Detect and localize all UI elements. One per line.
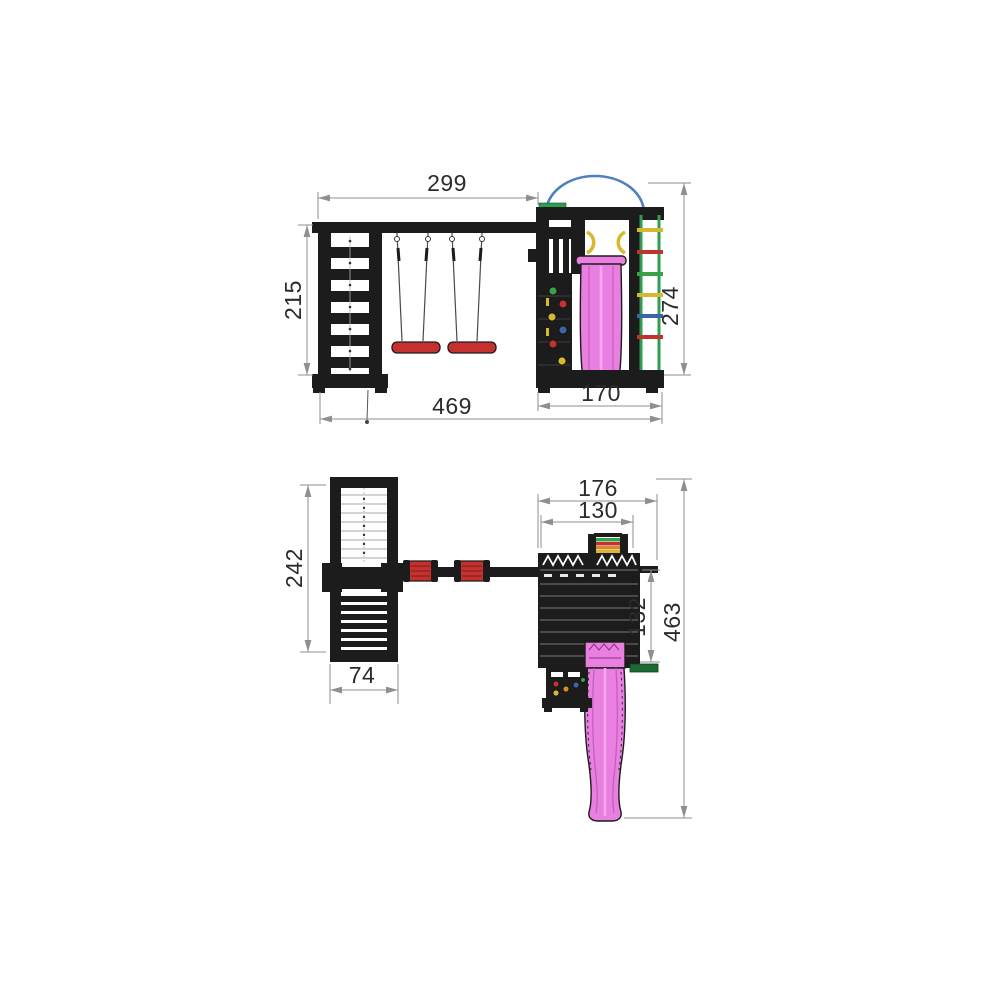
climb-hold [549,287,557,295]
front-climb-frame [312,233,388,424]
climb-hold [559,300,567,308]
plan-tower [538,533,658,821]
plan-ladder-rail-bottom [630,664,658,672]
climb-hold [563,686,569,692]
dimension-label: 242 [281,548,307,588]
swing-hook-icon [450,237,455,242]
plan-swing-seat-right [454,560,490,582]
swing-seat [392,342,440,353]
dimension-label: 215 [280,280,306,320]
dimension-label: 132 [624,597,650,637]
entry-handle [587,232,594,253]
dimension-label: 130 [578,497,618,523]
plan-climb-frame [322,477,403,662]
climb-hold [559,326,567,334]
dimension-beam-span: 299 [318,170,538,219]
dimension-label: 170 [581,380,621,406]
plan-swing-seat-left [403,560,438,582]
climb-hold [549,340,557,348]
slide-plan [585,642,625,821]
dimension-label: 274 [657,286,683,326]
entry-handle [618,232,625,253]
swing-seat [448,342,496,353]
slide-front [576,256,626,384]
front-tower [528,176,664,393]
swing-hook-icon [395,237,400,242]
dimension-label: 299 [427,170,467,196]
swing-hook-icon [426,237,431,242]
climb-hold [558,357,566,365]
dimension-label: 74 [349,662,376,688]
dimension-climb-frame-width: 74 [330,662,398,704]
climb-hold [573,682,579,688]
technical-drawing: 299 215 274 469 170 [0,0,1000,1000]
climb-hold [553,681,559,687]
front-swing-beam [312,222,544,233]
dimension-label: 469 [432,393,472,419]
dimension-climb-frame-height: 215 [280,225,313,375]
dimension-label: 463 [659,602,685,642]
playground-dimension-drawing: 299 215 274 469 170 [0,0,1000,1000]
front-view: 299 215 274 469 170 [280,170,691,424]
anchor-line [367,390,368,420]
dimension-climb-frame-depth: 242 [281,485,326,652]
climb-hold [553,690,559,696]
front-swing-right [448,233,496,353]
plan-view: 176 130 242 74 132 463 [281,475,692,821]
swing-hook-icon [480,237,485,242]
plan-climbing-wall [542,668,592,712]
climb-hold [548,313,556,321]
climb-hold [581,678,586,683]
front-swing-left [392,233,440,353]
